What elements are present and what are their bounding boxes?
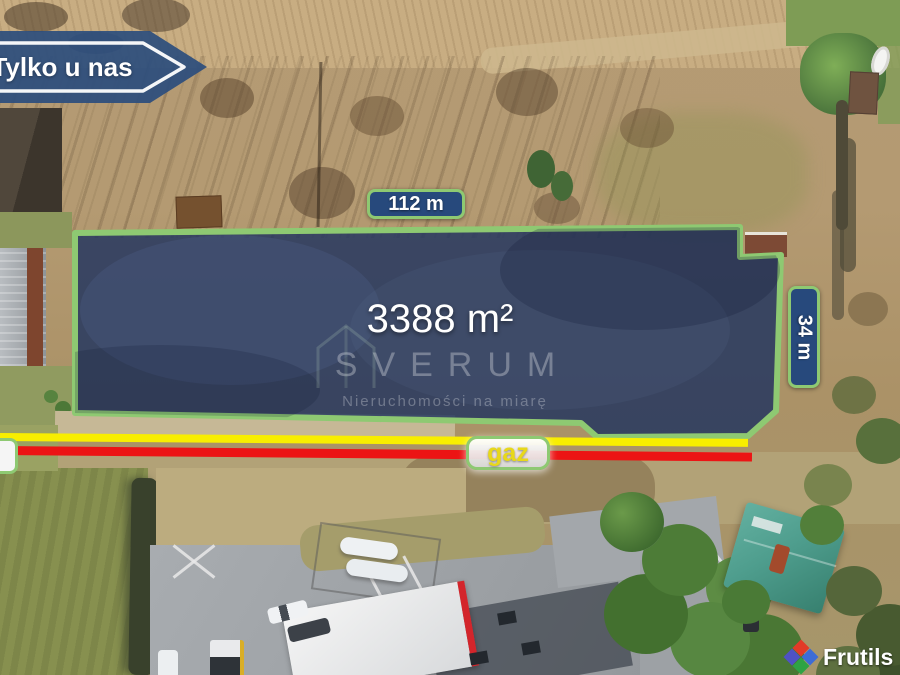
- gas-label: gaz: [466, 436, 550, 470]
- depth-dimension-label: 34 m: [788, 286, 820, 388]
- frutils-logo: Frutils: [786, 641, 900, 673]
- frutils-logo-text: Frutils: [823, 644, 893, 671]
- width-dimension-label: 112 m: [367, 189, 465, 219]
- offer-badge: Tylko u nas: [0, 28, 210, 106]
- width-dimension-value: 112 m: [388, 193, 444, 216]
- clipped-label-edge: [0, 438, 18, 474]
- offer-badge-label: Tylko u nas: [0, 52, 152, 83]
- gas-label-text: gaz: [487, 439, 529, 468]
- plot-area-label: 3388 m²: [330, 297, 550, 343]
- depth-dimension-value: 34 m: [793, 314, 816, 360]
- listing-photo: 112 m 34 m gaz 3388 m² SVERUM Nieruchomo…: [0, 0, 900, 675]
- frutils-logo-mark: [786, 642, 816, 672]
